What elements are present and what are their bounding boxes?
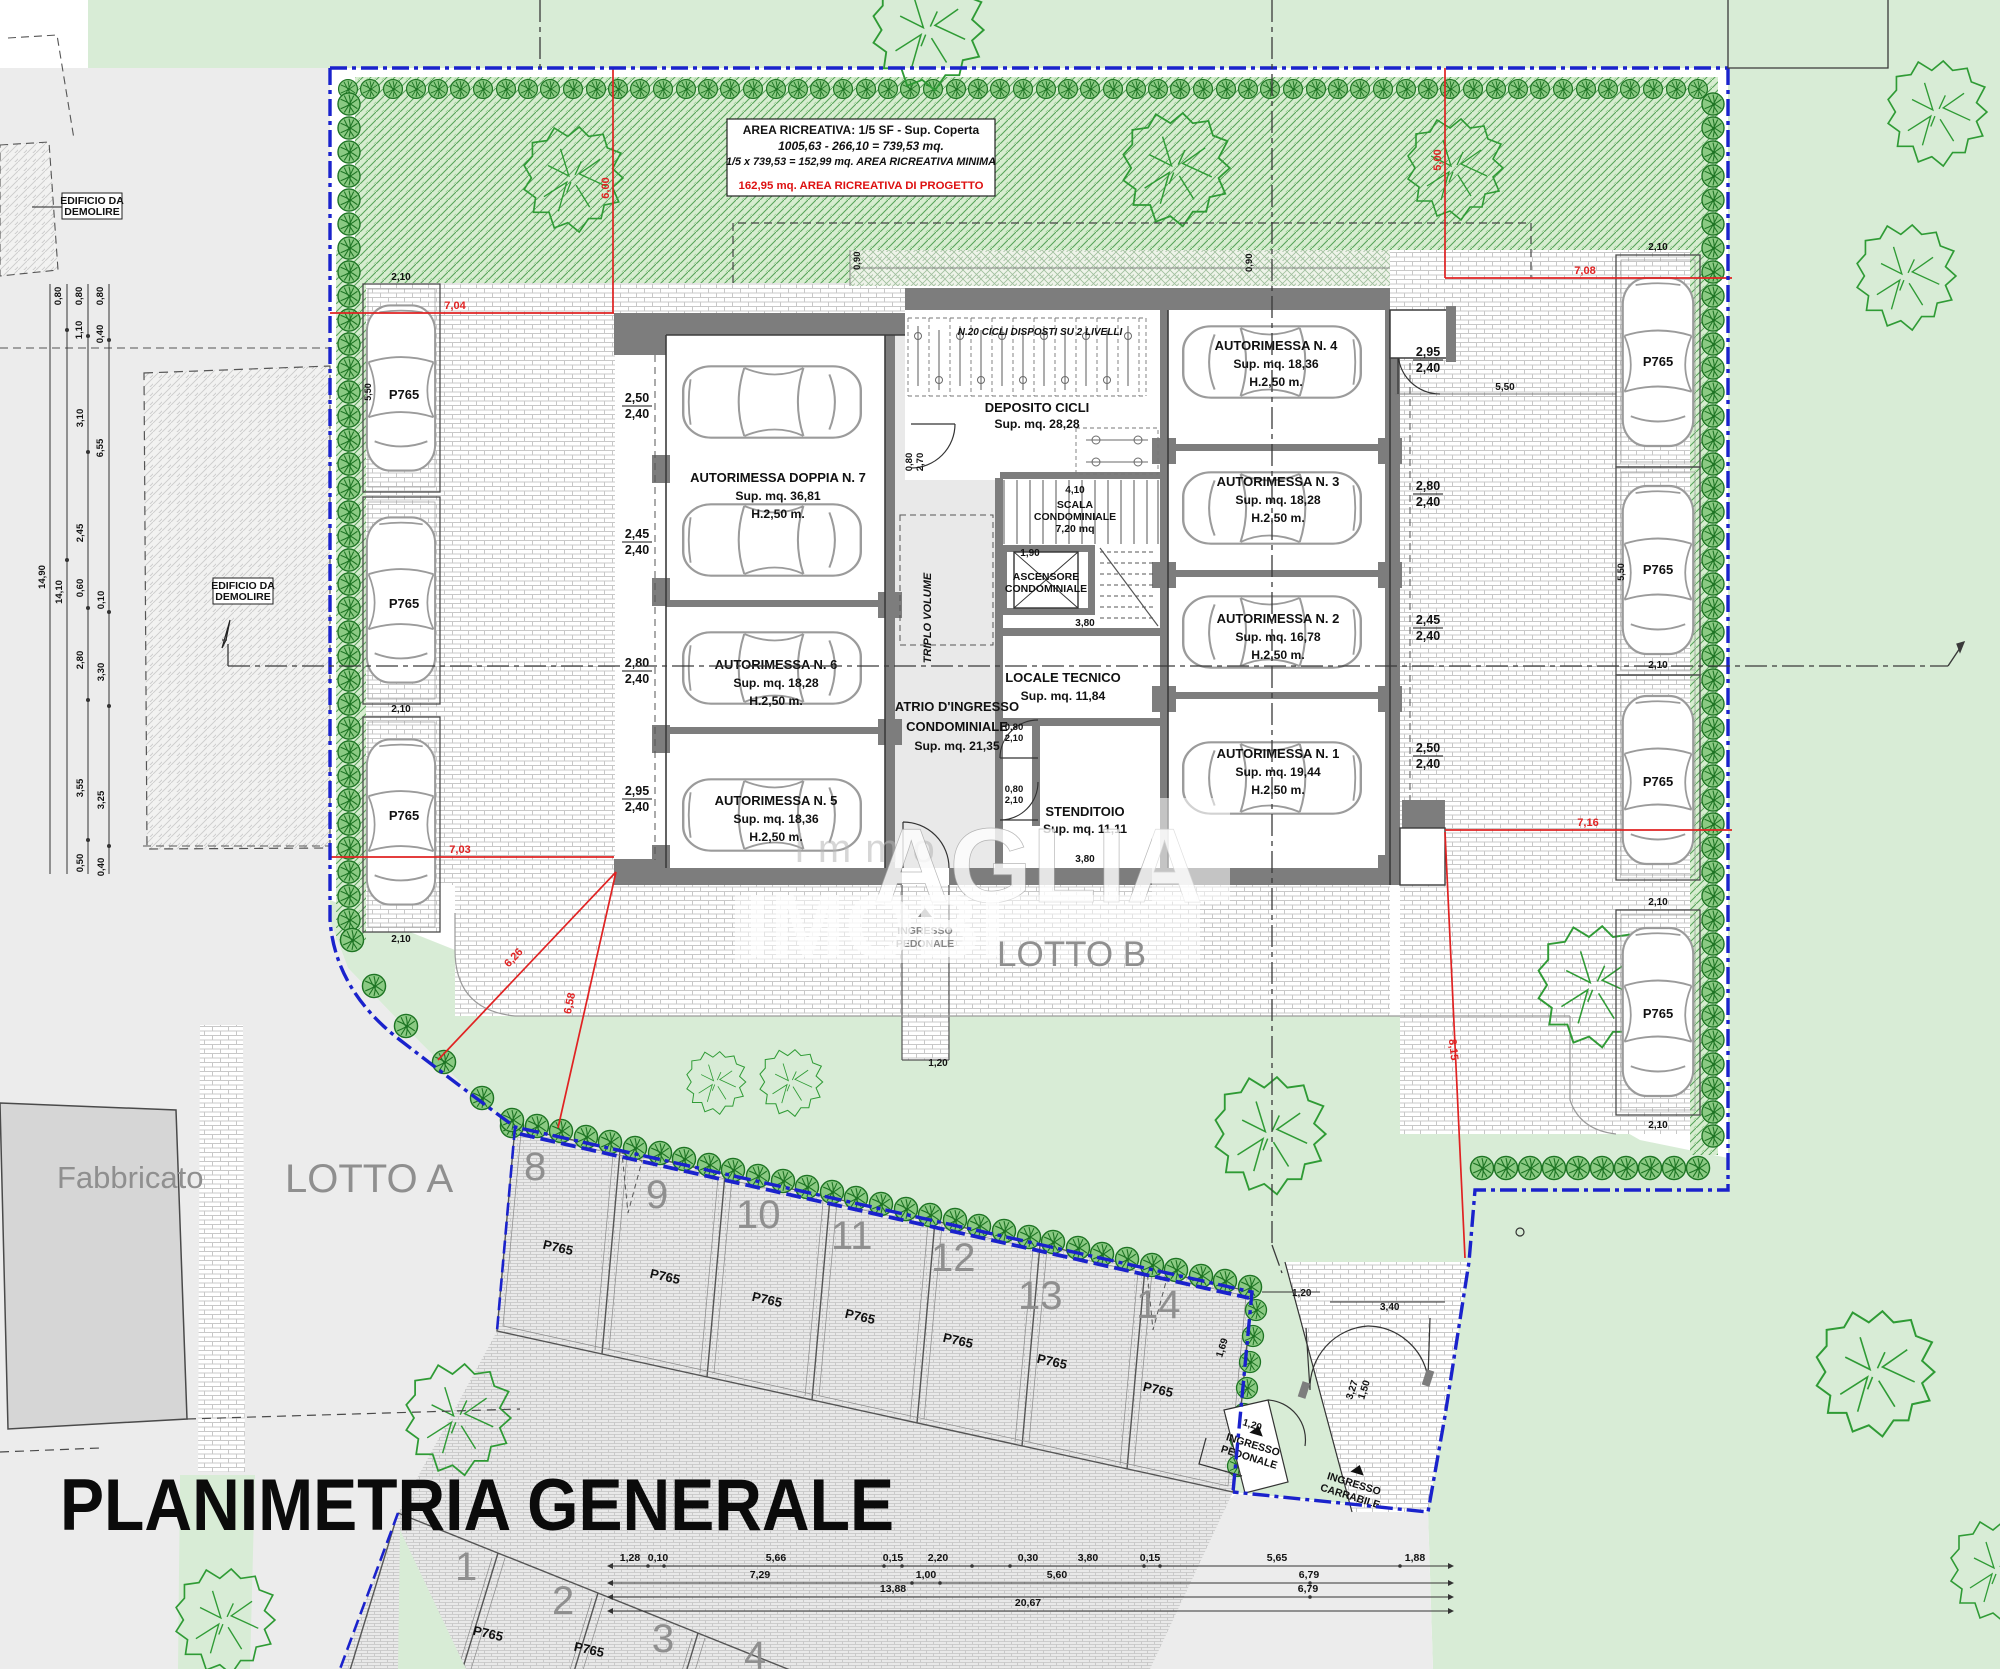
svg-text:Sup. mq. 28,28: Sup. mq. 28,28 [994,417,1080,431]
svg-text:14: 14 [1136,1283,1181,1327]
svg-text:5,50: 5,50 [363,383,373,401]
svg-text:4,10: 4,10 [1065,485,1085,496]
svg-text:2,95: 2,95 [625,784,649,798]
svg-text:2,40: 2,40 [1416,495,1440,509]
svg-text:6,55: 6,55 [95,438,106,457]
svg-text:AUTORIMESSA N. 4: AUTORIMESSA N. 4 [1215,338,1339,353]
svg-text:AUTORIMESSA N. 3: AUTORIMESSA N. 3 [1217,474,1340,489]
svg-text:6,79: 6,79 [1298,1583,1319,1595]
svg-text:AUTORIMESSA DOPPIA N. 7: AUTORIMESSA DOPPIA N. 7 [690,470,866,485]
svg-text:Sup. mq. 18,28: Sup. mq. 18,28 [733,676,819,690]
svg-text:2,95: 2,95 [1416,345,1440,359]
svg-text:9: 9 [646,1173,668,1217]
svg-text:1005,63 - 266,10 = 739,53 mq.: 1005,63 - 266,10 = 739,53 mq. [778,139,944,153]
svg-text:H.2,50 m.: H.2,50 m. [1249,375,1303,389]
svg-text:5,00: 5,00 [1432,149,1444,170]
svg-text:3,30: 3,30 [96,663,107,682]
svg-text:Sup. mq. 16,78: Sup. mq. 16,78 [1235,630,1321,644]
svg-text:2,40: 2,40 [625,543,649,557]
svg-text:2,80: 2,80 [1416,479,1440,493]
svg-text:DEMOLIRE: DEMOLIRE [215,591,270,603]
svg-text:Sup. mq. 18,36: Sup. mq. 18,36 [733,812,819,826]
svg-text:3,80: 3,80 [1078,1552,1099,1564]
svg-text:DEMOLIRE: DEMOLIRE [64,206,119,218]
svg-text:AUTORIMESSA N. 2: AUTORIMESSA N. 2 [1217,611,1340,626]
svg-text:2,10: 2,10 [391,934,411,945]
svg-text:1,20: 1,20 [928,1058,948,1069]
svg-text:0,30: 0,30 [1018,1552,1039,1564]
svg-text:7,29: 7,29 [750,1569,771,1581]
svg-text:AUTORIMESSA N. 1: AUTORIMESSA N. 1 [1217,746,1340,761]
svg-text:0,15: 0,15 [1140,1552,1161,1564]
svg-text:4: 4 [744,1634,766,1669]
svg-text:0,80: 0,80 [53,287,64,306]
svg-text:H.2,50 m.: H.2,50 m. [1251,783,1305,797]
svg-text:1,00: 1,00 [916,1569,937,1581]
svg-text:5,50: 5,50 [1495,382,1515,393]
svg-text:Sup. mq. 11,84: Sup. mq. 11,84 [1021,689,1106,703]
svg-text:N.20 CICLI DISPOSTI SU 2 LIVEL: N.20 CICLI DISPOSTI SU 2 LIVELLI [958,327,1123,338]
svg-text:0,15: 0,15 [883,1552,904,1564]
svg-text:2,80: 2,80 [75,651,86,670]
svg-text:2,10: 2,10 [1005,733,1024,744]
svg-text:Sup. mq. 21,35: Sup. mq. 21,35 [914,739,1000,753]
svg-text:CONDOMINIALE: CONDOMINIALE [1005,583,1087,595]
svg-text:13,88: 13,88 [880,1583,906,1595]
svg-text:2,40: 2,40 [625,407,649,421]
svg-text:0,60: 0,60 [75,579,86,598]
svg-text:P765: P765 [1643,562,1673,577]
svg-text:2,70: 2,70 [915,453,926,472]
svg-text:LOTTO A: LOTTO A [285,1157,454,1201]
svg-text:0,40: 0,40 [95,325,106,344]
svg-text:2,40: 2,40 [1416,629,1440,643]
svg-text:2,10: 2,10 [1648,897,1668,908]
svg-text:1,90: 1,90 [1020,548,1040,559]
svg-text:CONDOMINIALE: CONDOMINIALE [906,719,1008,734]
svg-text:1,10: 1,10 [74,321,85,340]
svg-text:2,45: 2,45 [75,523,86,542]
svg-text:20,67: 20,67 [1015,1597,1041,1609]
svg-text:5,60: 5,60 [1047,1569,1068,1581]
svg-text:0,80: 0,80 [904,453,915,472]
svg-text:2,50: 2,50 [625,391,649,405]
svg-text:8,15: 8,15 [1446,1038,1460,1061]
svg-text:14,90: 14,90 [37,565,48,589]
svg-text:7,16: 7,16 [1577,817,1598,829]
svg-text:2,50: 2,50 [1416,741,1440,755]
svg-text:2,40: 2,40 [625,800,649,814]
svg-text:3,55: 3,55 [75,778,86,797]
svg-text:P765: P765 [389,387,419,402]
svg-text:7,08: 7,08 [1574,265,1595,277]
svg-text:11: 11 [831,1214,873,1258]
svg-text:AUTORIMESSA N. 5: AUTORIMESSA N. 5 [715,793,838,808]
svg-text:1/5 x 739,53 = 152,99 mq. AREA: 1/5 x 739,53 = 152,99 mq. AREA RICREATIV… [726,156,996,168]
svg-text:SCALA: SCALA [1057,499,1094,511]
svg-text:0,90: 0,90 [852,252,863,271]
svg-text:14,10: 14,10 [54,580,65,604]
svg-text:2,10: 2,10 [1005,795,1024,806]
svg-text:2,40: 2,40 [625,672,649,686]
svg-text:P765: P765 [389,808,419,823]
svg-text:1,88: 1,88 [1405,1552,1426,1564]
svg-text:6,00: 6,00 [600,177,612,198]
svg-text:H.2,50 m.: H.2,50 m. [1251,511,1305,525]
svg-text:P765: P765 [1643,774,1673,789]
svg-text:2,10: 2,10 [391,704,411,715]
svg-text:7,20 mq: 7,20 mq [1055,523,1094,535]
svg-text:1: 1 [455,1545,477,1589]
svg-text:5,50: 5,50 [1616,563,1626,581]
svg-text:ATRIO D'INGRESSO: ATRIO D'INGRESSO [895,699,1019,714]
svg-text:Sup. mq. 36,81: Sup. mq. 36,81 [735,489,821,503]
svg-text:3,40: 3,40 [1380,1302,1400,1313]
svg-text:0,80: 0,80 [74,287,85,306]
svg-text:CONDOMINIALE: CONDOMINIALE [1034,511,1116,523]
svg-text:3,80: 3,80 [1075,618,1095,629]
svg-text:P765: P765 [1643,354,1673,369]
svg-text:2,80: 2,80 [625,656,649,670]
svg-text:3,10: 3,10 [75,409,86,428]
svg-text:6,79: 6,79 [1299,1569,1320,1581]
svg-text:0,50: 0,50 [75,854,86,873]
svg-text:2,40: 2,40 [1416,361,1440,375]
svg-text:5,66: 5,66 [766,1552,787,1564]
svg-text:2,45: 2,45 [625,527,649,541]
svg-text:Sup. mq. 19,44: Sup. mq. 19,44 [1235,765,1321,779]
svg-text:AREA RICREATIVA: 1/5 SF - Sup.: AREA RICREATIVA: 1/5 SF - Sup. Coperta [743,123,980,137]
svg-text:Sup. mq. 18,36: Sup. mq. 18,36 [1233,357,1319,371]
svg-text:LOCALE TECNICO: LOCALE TECNICO [1005,670,1121,685]
svg-text:0,80: 0,80 [95,287,106,306]
svg-text:3: 3 [652,1617,674,1661]
svg-text:2,20: 2,20 [928,1552,949,1564]
svg-text:LOTTO B: LOTTO B [997,935,1146,974]
svg-text:5,65: 5,65 [1267,1552,1288,1564]
svg-text:H.2,50 m.: H.2,50 m. [751,507,805,521]
svg-text:H.2,50 m.: H.2,50 m. [749,694,803,708]
svg-text:PLANIMETRIA GENERALE: PLANIMETRIA GENERALE [60,1465,894,1546]
svg-text:IMOBI: IMOBI [745,877,1005,977]
svg-text:0,90: 0,90 [1244,254,1255,273]
svg-text:0,80: 0,80 [1005,784,1024,795]
svg-text:1,28: 1,28 [620,1552,641,1564]
svg-text:P765: P765 [389,596,419,611]
svg-text:2,10: 2,10 [1648,1120,1668,1131]
svg-text:2: 2 [552,1579,574,1623]
svg-text:0,40: 0,40 [96,858,107,877]
svg-text:162,95 mq. AREA RICREATIVA DI: 162,95 mq. AREA RICREATIVA DI PROGETTO [739,180,984,192]
svg-text:DEPOSITO CICLI: DEPOSITO CICLI [985,400,1090,415]
svg-text:8: 8 [524,1145,546,1189]
svg-text:2,45: 2,45 [1416,613,1440,627]
svg-text:2,10: 2,10 [391,272,411,283]
svg-text:12: 12 [931,1236,976,1280]
svg-text:Sup. mq. 18,28: Sup. mq. 18,28 [1235,493,1321,507]
svg-text:0,10: 0,10 [96,591,107,610]
svg-text:1,20: 1,20 [1292,1288,1312,1299]
svg-text:3,25: 3,25 [96,790,107,809]
svg-text:Fabbricato: Fabbricato [57,1160,203,1195]
svg-text:H.2,50 m.: H.2,50 m. [1251,648,1305,662]
svg-text:13: 13 [1018,1274,1063,1318]
svg-text:7,03: 7,03 [449,844,470,856]
svg-text:10: 10 [736,1193,781,1237]
svg-text:7,04: 7,04 [444,300,466,312]
svg-text:P765: P765 [1643,1006,1673,1021]
svg-text:2,10: 2,10 [1648,242,1668,253]
svg-text:ASCENSORE: ASCENSORE [1013,571,1080,583]
svg-text:2,40: 2,40 [1416,757,1440,771]
svg-text:AUTORIMESSA N. 6: AUTORIMESSA N. 6 [715,657,838,672]
svg-text:0,80: 0,80 [1005,722,1024,733]
svg-text:0,10: 0,10 [648,1552,669,1564]
svg-text:TRIPLO VOLUME: TRIPLO VOLUME [922,572,934,663]
